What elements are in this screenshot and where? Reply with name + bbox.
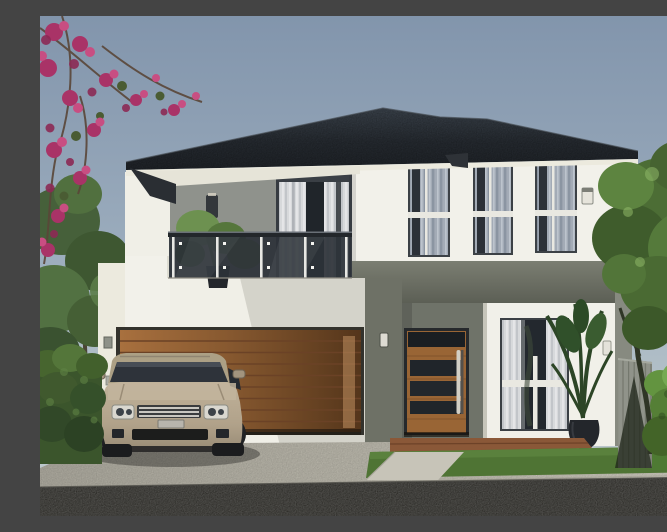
- door-transom-glass: [408, 332, 465, 347]
- upper-window-2: [473, 164, 513, 255]
- car-foglight-right: [216, 429, 229, 438]
- car-foglight-left: [112, 429, 124, 438]
- upper-window-3: [535, 163, 577, 253]
- balcony-glass-railing: [168, 232, 352, 279]
- middle-grey-wall: [365, 278, 402, 444]
- house-render-scene: [40, 16, 667, 516]
- door-handle: [457, 350, 461, 414]
- left-hedge: [40, 344, 108, 464]
- car-tire-right: [212, 443, 244, 456]
- garage-keypad-icon: [104, 337, 112, 348]
- front-door: [404, 328, 469, 437]
- door-glass-slat: [410, 401, 461, 414]
- car-intake: [132, 429, 208, 440]
- garage-side-panel: [343, 336, 355, 428]
- door-glass-slat: [410, 381, 461, 396]
- car-headlight-left: [112, 405, 134, 419]
- car-tire-left: [102, 444, 132, 457]
- car-mirror-right: [233, 370, 245, 378]
- car-hood: [108, 383, 236, 400]
- car-license-plate: [158, 420, 184, 428]
- upper-right-wall-light-icon: [582, 188, 593, 204]
- car-headlight-right: [204, 405, 228, 419]
- upper-window-1: [408, 165, 450, 257]
- middle-wall-light-icon: [380, 333, 388, 347]
- door-glass-slat: [410, 360, 461, 376]
- scene-canvas: [40, 16, 667, 516]
